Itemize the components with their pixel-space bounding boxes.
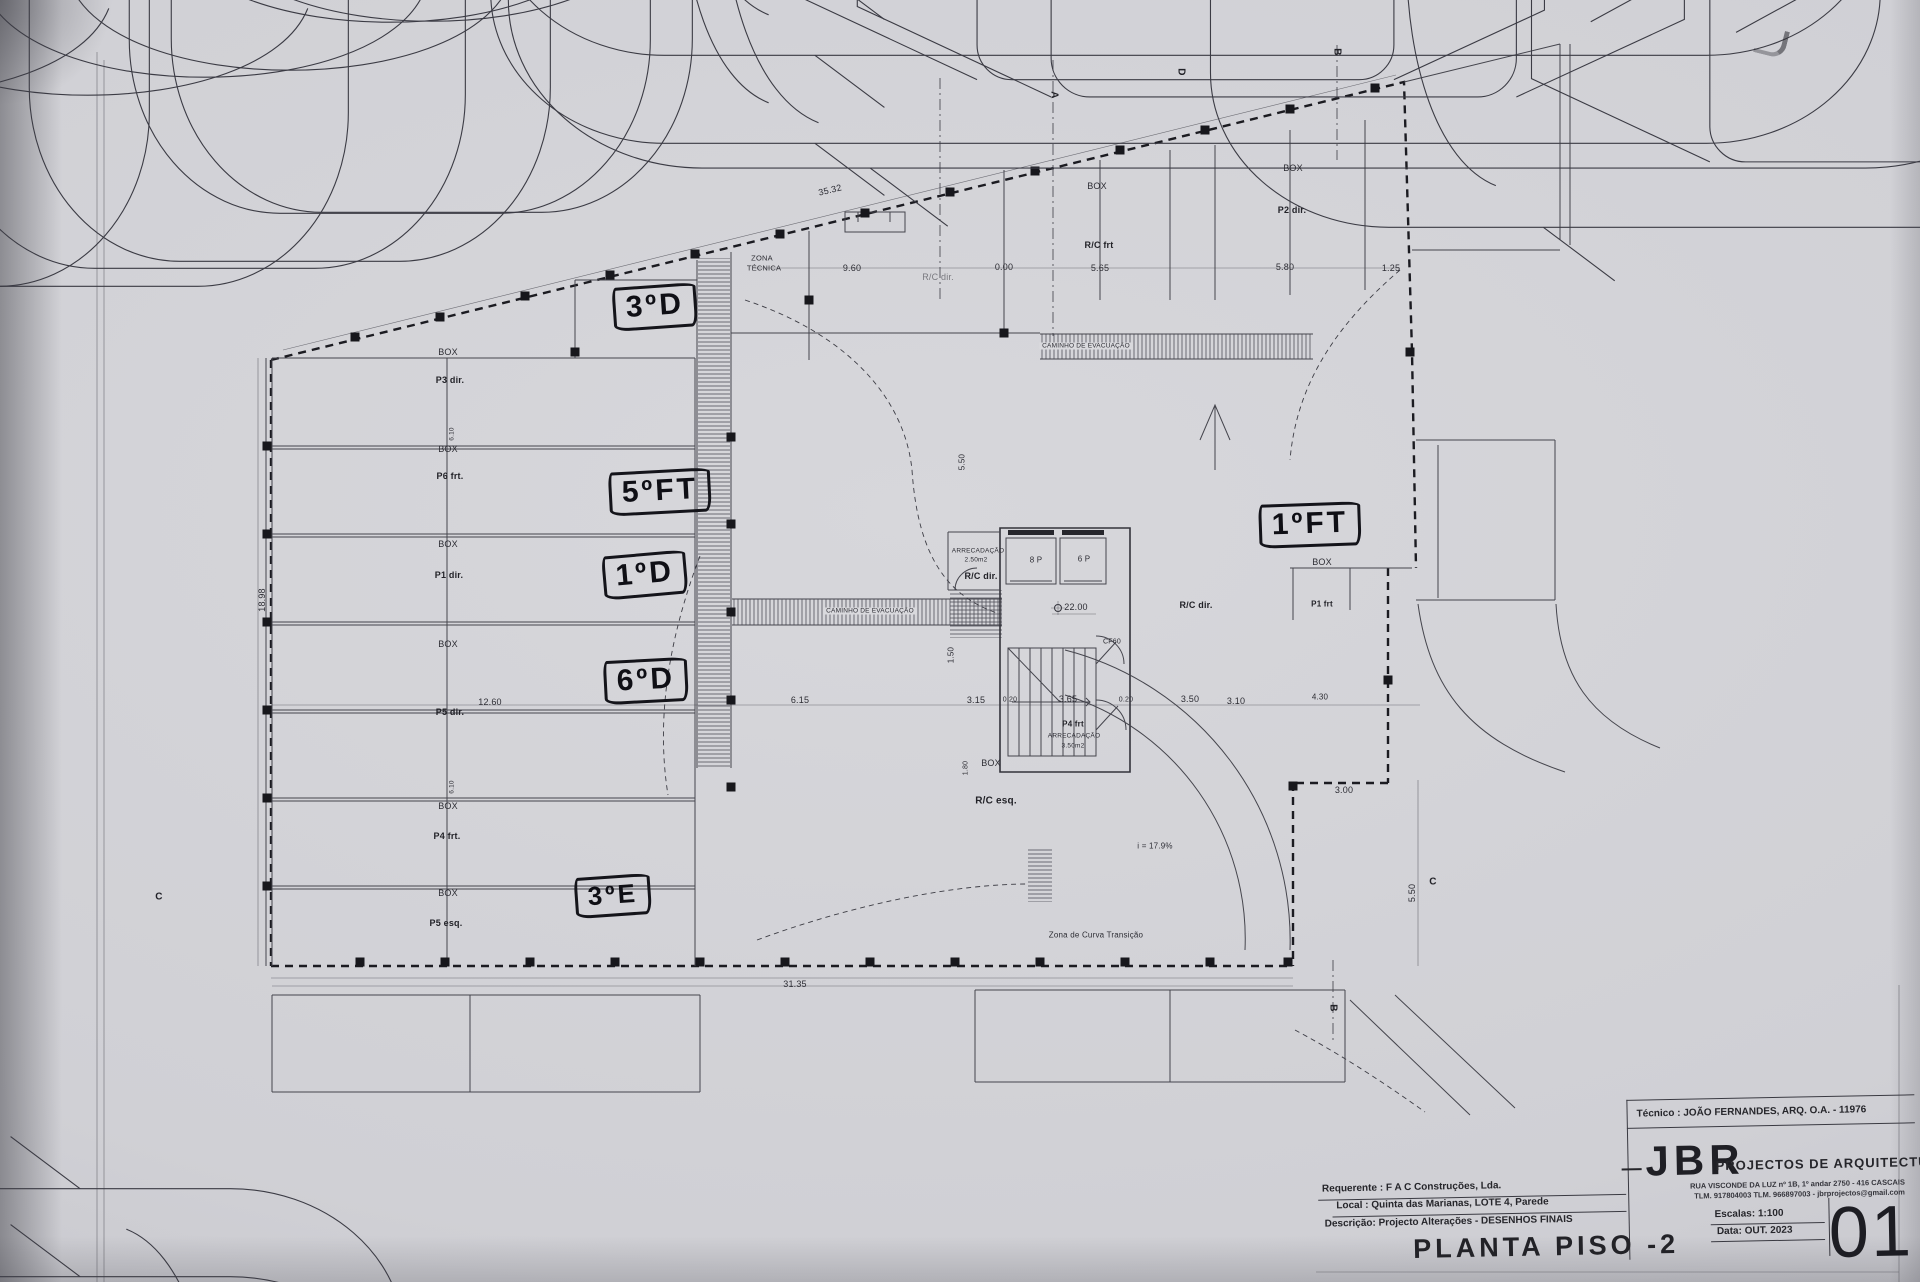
title-block: Técnico : JOÃO FERNANDES, ARQ. O.A. - 11… <box>1314 1086 1920 1282</box>
structural-column <box>696 958 705 967</box>
structural-column <box>727 783 736 792</box>
structural-column <box>1284 958 1293 967</box>
parked-cars <box>0 0 1920 1282</box>
sheet-number: 01 <box>1828 1190 1914 1274</box>
structural-column <box>1116 146 1125 155</box>
structural-column <box>1289 782 1298 791</box>
structural-column <box>1384 676 1393 685</box>
structural-column <box>606 271 615 280</box>
structural-column <box>861 209 870 218</box>
car-top-view <box>0 0 517 268</box>
structural-column <box>1286 105 1295 114</box>
parking-stalls-left <box>266 280 697 966</box>
structural-column <box>727 608 736 617</box>
structural-columns <box>263 84 1415 967</box>
car-top-view <box>508 0 1920 226</box>
requerente-value: F A C Construções, Lda. <box>1386 1180 1502 1193</box>
car-top-view <box>491 0 1881 107</box>
structural-column <box>946 188 955 197</box>
structural-column <box>805 296 814 305</box>
requerente-label: Requerente : <box>1322 1183 1383 1195</box>
local-value: Quinta das Marianas, LOTE 4, Parede <box>1371 1196 1548 1210</box>
car-top-view <box>491 0 1881 195</box>
structural-column <box>356 958 365 967</box>
photo-of-floor-plan: 35.329.600.005.655.801.2518.986.106.1012… <box>0 0 1920 1282</box>
handwritten-label-1ft: 1ºFT <box>1258 501 1362 549</box>
structural-column <box>781 958 790 967</box>
structural-column <box>1201 126 1210 135</box>
right-side-structures <box>1100 44 1660 772</box>
handwritten-label-3d: 3ºD <box>611 282 698 332</box>
structural-column <box>1036 958 1045 967</box>
structural-column <box>776 230 785 239</box>
building-core <box>948 528 1130 772</box>
technician-line: Técnico : JOÃO FERNANDES, ARQ. O.A. - 11… <box>1637 1104 1867 1119</box>
handwritten-label-5ft: 5ºFT <box>608 467 712 516</box>
hatched-bands <box>697 252 1313 902</box>
structural-column <box>1121 958 1130 967</box>
structural-column <box>571 348 580 357</box>
floor-plan-drawing <box>0 0 1920 1282</box>
structural-column <box>1371 84 1380 93</box>
structural-column <box>866 958 875 967</box>
handwritten-label-3e: 3ºE <box>574 873 653 919</box>
structural-column <box>263 530 272 539</box>
structural-column <box>263 882 272 891</box>
property-boundary <box>271 82 1416 966</box>
date-label: Data: OUT. 2023 <box>1717 1225 1793 1237</box>
firm-dash: — <box>1621 1158 1641 1181</box>
car-top-view <box>0 0 400 286</box>
street-parking <box>272 990 1515 1115</box>
structural-column <box>263 706 272 715</box>
structural-column <box>691 250 700 259</box>
local-label: Local : <box>1336 1200 1368 1212</box>
structural-column <box>521 292 530 301</box>
descricao-label: Descrição: <box>1325 1218 1376 1230</box>
requerente-row: Requerente : F A C Construções, Lda. <box>1322 1180 1501 1194</box>
car-top-view <box>0 1225 404 1282</box>
firm-name: PROJECTOS DE ARQUITECTURA <box>1715 1154 1920 1173</box>
structural-column <box>436 313 445 322</box>
drawing-title: PLANTA PISO -2 <box>1413 1229 1680 1265</box>
structural-column <box>611 958 620 967</box>
structural-column <box>263 442 272 451</box>
handwritten-label-1d: 1ºD <box>601 549 689 600</box>
structural-column <box>1406 348 1415 357</box>
structural-column <box>727 696 736 705</box>
structural-column <box>727 520 736 529</box>
descricao-value: Projecto Alterações - DESENHOS FINAIS <box>1378 1214 1572 1229</box>
car-top-view <box>1210 0 1920 281</box>
car-top-view <box>0 0 602 261</box>
scale-label: Escalas: 1:100 <box>1714 1208 1783 1220</box>
structural-column <box>951 958 960 967</box>
handwritten-label-6d: 6ºD <box>603 657 689 705</box>
structural-column <box>1206 958 1215 967</box>
structural-column <box>727 433 736 442</box>
structural-column <box>1000 329 1009 338</box>
structural-column <box>263 618 272 627</box>
structural-column <box>263 794 272 803</box>
car-top-view <box>0 1137 404 1282</box>
structural-column <box>351 333 360 342</box>
top-lane <box>731 170 1040 360</box>
structural-column <box>441 958 450 967</box>
structural-column <box>526 958 535 967</box>
